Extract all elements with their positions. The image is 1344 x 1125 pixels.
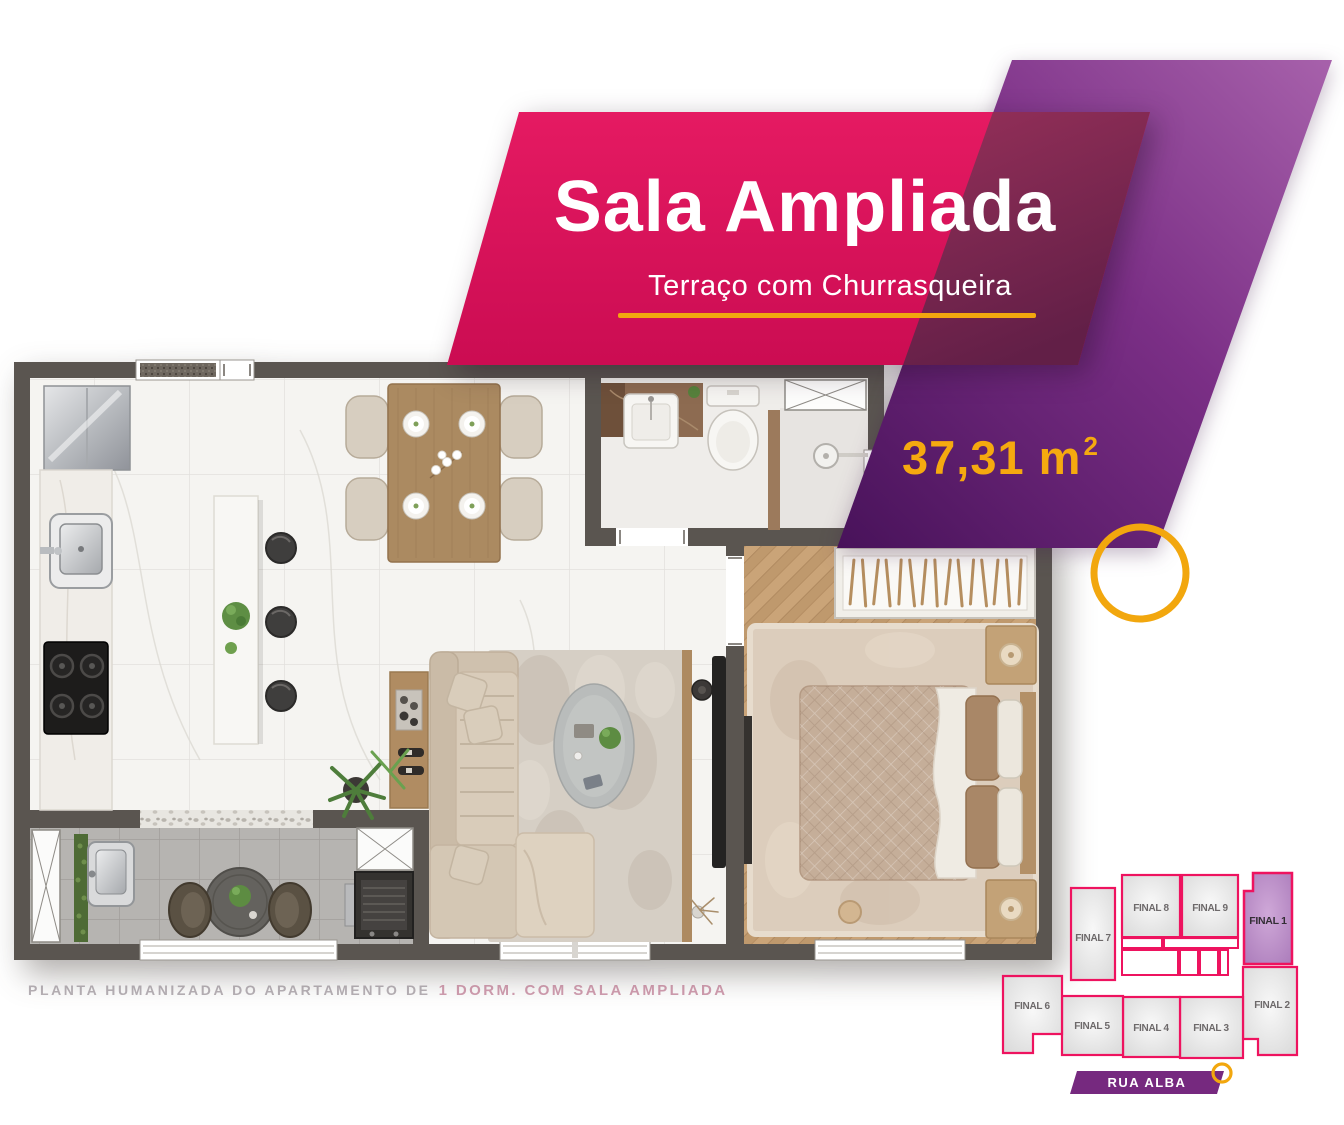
wardrobe xyxy=(835,548,1035,618)
entry-door-opening xyxy=(220,360,254,380)
toilet xyxy=(707,386,759,470)
unit-final-6 xyxy=(1003,976,1062,1053)
unit-label: FINAL 4 xyxy=(1133,1023,1169,1034)
page-subtitle: Terraço com Churrasqueira xyxy=(540,270,1120,303)
duct-shaft-icon xyxy=(785,380,866,410)
core-corridor xyxy=(1122,937,1238,975)
outdoor-table xyxy=(206,868,274,936)
coffee-table xyxy=(554,684,634,808)
bedroom-tv xyxy=(744,716,752,864)
garden-sink xyxy=(88,842,134,906)
bath-plant xyxy=(688,386,700,398)
bedroom-door-opening xyxy=(726,556,744,646)
area-label: 37,31 m2 xyxy=(902,430,1162,485)
pebble-strip xyxy=(140,810,313,828)
flyer-canvas: FINAL 7 FINAL 8 FINAL 9 FINAL 1 FINAL 2 … xyxy=(0,0,1344,1125)
street-label: RUA ALBA xyxy=(1108,1075,1187,1090)
pouf xyxy=(839,901,861,923)
dining-table xyxy=(388,384,500,562)
nightstand-bottom xyxy=(986,880,1036,938)
caption-highlight: 1 DORM. COM SALA AMPLIADA xyxy=(439,982,728,999)
vertical-garden xyxy=(74,834,88,942)
terrace-window xyxy=(140,940,337,960)
unit-label: FINAL 3 xyxy=(1193,1023,1229,1034)
area-value: 37,31 m xyxy=(902,431,1081,484)
unit-label: FINAL 5 xyxy=(1074,1021,1110,1032)
outdoor-chair xyxy=(169,883,211,937)
caption-prefix: PLANTA HUMANIZADA DO APARTAMENTO DE xyxy=(28,982,431,998)
bar-stools xyxy=(266,533,296,711)
nightstand-top xyxy=(986,626,1036,684)
outdoor-chair xyxy=(269,883,311,937)
unit-label: FINAL 7 xyxy=(1075,933,1111,944)
bedroom-window xyxy=(815,940,965,960)
tv-panel xyxy=(712,656,726,868)
unit-label: FINAL 8 xyxy=(1133,903,1169,914)
unit-label: FINAL 2 xyxy=(1254,1000,1290,1011)
page-title: Sala Ampliada xyxy=(500,166,1110,248)
unit-label: FINAL 6 xyxy=(1014,1001,1050,1012)
unit-final-2 xyxy=(1243,967,1297,1055)
sink-faucet-icon xyxy=(648,396,654,402)
duct-shaft-icon xyxy=(357,828,413,870)
area-superscript: 2 xyxy=(1083,431,1098,461)
duct-shaft-icon xyxy=(32,830,60,942)
faucet-icon xyxy=(40,547,54,554)
shower-divider xyxy=(768,410,780,530)
plan-caption: PLANTA HUMANIZADA DO APARTAMENTO DE1 DOR… xyxy=(28,982,928,999)
bar-tray xyxy=(396,690,422,730)
unit-label: FINAL 9 xyxy=(1192,903,1228,914)
bathroom-door-opening xyxy=(616,528,688,546)
table-plant xyxy=(229,885,251,907)
island-plant xyxy=(222,602,250,630)
title-underline xyxy=(618,313,1036,318)
window-screen xyxy=(140,363,216,377)
unit-label-highlighted: FINAL 1 xyxy=(1249,915,1287,927)
barbecue-grill xyxy=(345,872,413,938)
